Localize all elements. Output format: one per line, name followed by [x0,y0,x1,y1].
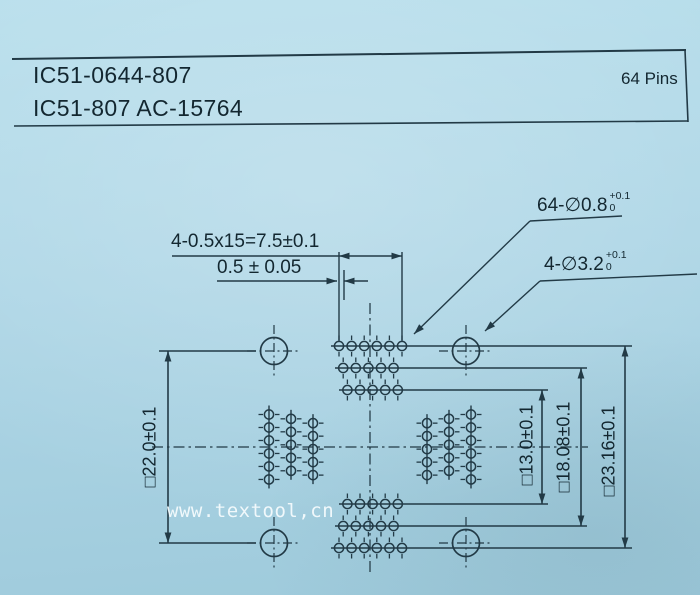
part-number-primary: IC51-0644-807 [33,62,192,89]
dim-inner-square-13: □13.0±0.1 [517,405,538,486]
dimension-arrowhead [622,346,629,357]
scanned-datasheet-page: IC51-0644-807 IC51-807 AC-15764 64 Pins … [0,0,700,595]
dimension-arrowhead [327,278,338,285]
watermark-text: www.textool,cn [167,500,334,522]
dim-middle-square-18: □18.08±0.1 [554,402,575,493]
dimension-arrowhead [578,516,585,527]
dim-stagger-offset: 0.5 ± 0.05 [217,257,301,279]
dimension-arrowhead [165,351,172,362]
callout-guide-hole-diameter: 4-∅3.2+0.10 [544,253,627,277]
dimension-arrowhead [344,278,355,285]
callout-guide-hole-text: 4-∅3.2 [544,254,604,275]
dimension-arrowhead [539,494,546,505]
pin-hole-tolerance: +0.10 [609,191,630,214]
dimension-arrowhead [539,390,546,401]
dim-outer-square-23: □23.16±0.1 [599,406,620,497]
guide-hole-tolerance: +0.10 [606,250,627,273]
technical-drawing [0,0,700,595]
dimension-arrowhead [622,538,629,549]
part-number-secondary: IC51-807 AC-15764 [33,95,243,122]
pin-count-label: 64 Pins [621,69,678,89]
dimension-arrowhead [578,368,585,379]
dimension-arrowhead [392,253,403,260]
callout-pin-hole-diameter: 64-∅0.8+0.10 [537,194,630,218]
dimension-arrowhead [339,253,350,260]
dim-pin-pitch: 4-0.5x15=7.5±0.1 [171,231,319,253]
callout-pin-hole-text: 64-∅0.8 [537,195,607,216]
dim-left-square-22: □22.0±0.1 [140,407,161,488]
dimension-arrowhead [165,533,172,544]
